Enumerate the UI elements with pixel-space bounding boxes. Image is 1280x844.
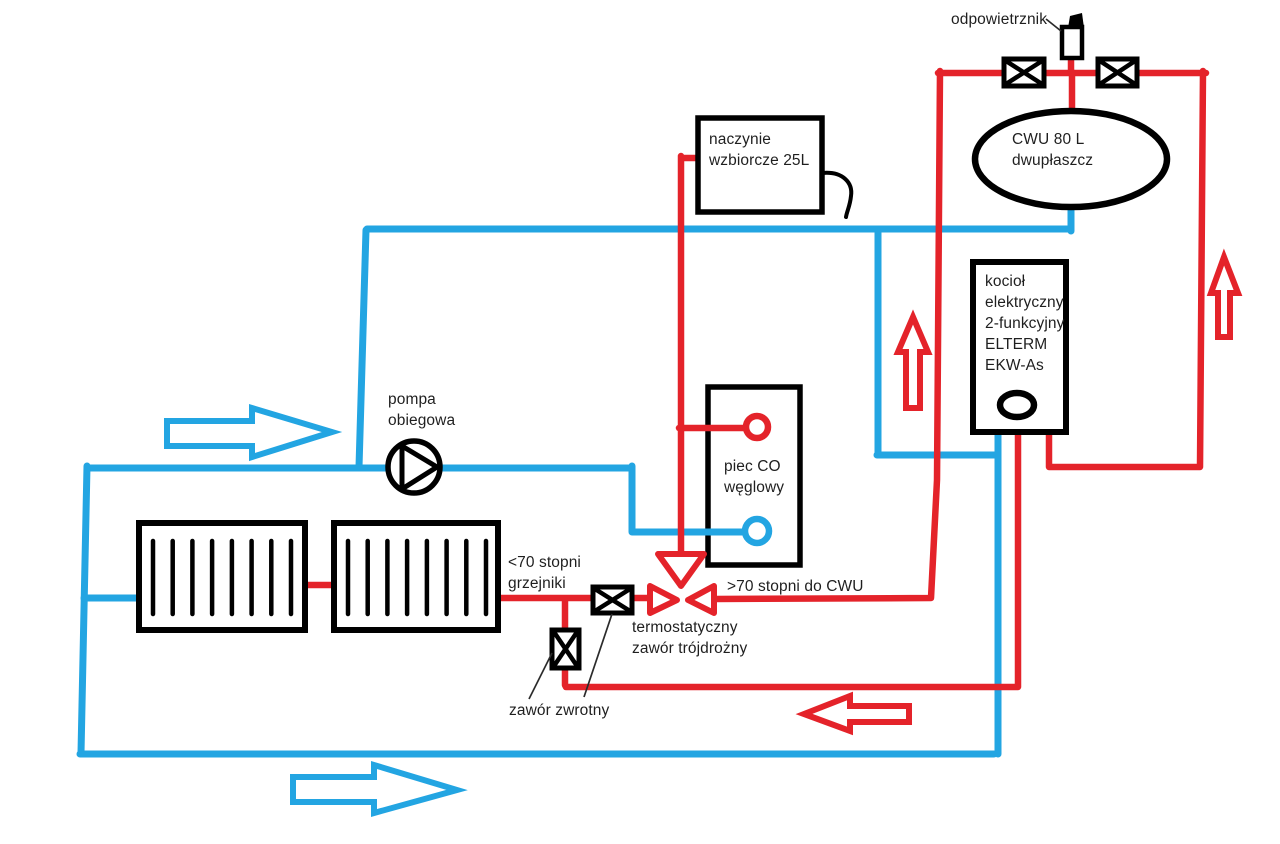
flow-arrow-cold-right-bottom [293,765,457,813]
circulation-pump-label: pompa obiegowa [388,389,455,431]
flow-arrow-hot-up-mid [898,317,928,408]
valve-top-right-icon [1098,59,1137,86]
check-valve-label: zawór zwrotny [509,700,609,721]
flow-arrow-cold-right-upper [167,408,332,457]
expansion-vessel-label: naczynie wzbiorcze 25L [709,129,809,171]
dhw-temp-label: >70 stopni do CWU [727,576,864,597]
valve-top-left-icon [1004,59,1044,86]
radiators-temp-label: <70 stopni grzejniki [508,552,581,594]
circulation-pump-icon [388,441,440,493]
heating-system-diagram: odpowietrznik CWU 80 L dwupłaszcz naczyn… [0,0,1280,844]
pipe-hot-expansion-riser [681,156,700,556]
pipe-cold-left-drop [359,230,366,467]
air-vent-label: odpowietrznik [951,9,1047,30]
coal-stove-label: piec CO węglowy [724,456,784,498]
check-valve-horizontal-icon [593,587,632,613]
stove-cold-port-icon [745,519,769,543]
three-way-valve-label: termostatyczny zawór trójdrożny [632,617,747,659]
radiator-left [139,523,305,630]
air-vent-cap-icon [1068,13,1084,28]
flow-arrow-hot-left-return [804,696,909,731]
stove-hot-port-icon [746,416,768,438]
leader-check-valve-1 [529,653,552,699]
leader-air-vent [1046,19,1061,31]
diagram-canvas [0,0,1280,844]
flow-arrow-hot-up-right [1211,257,1238,337]
dhw-tank-label: CWU 80 L dwupłaszcz [1012,129,1093,171]
air-vent-body-icon [1062,27,1082,58]
three-way-valve-icon [650,554,714,613]
pipe-cold-left-vertical [81,466,87,753]
boiler-port-icon [1000,393,1034,417]
electric-boiler-label: kocioł elektryczny 2-funkcyjny ELTERM EK… [985,271,1065,376]
expansion-vessel-hose [822,173,851,217]
radiator-right [334,523,498,630]
check-valve-vertical-icon [552,630,579,668]
